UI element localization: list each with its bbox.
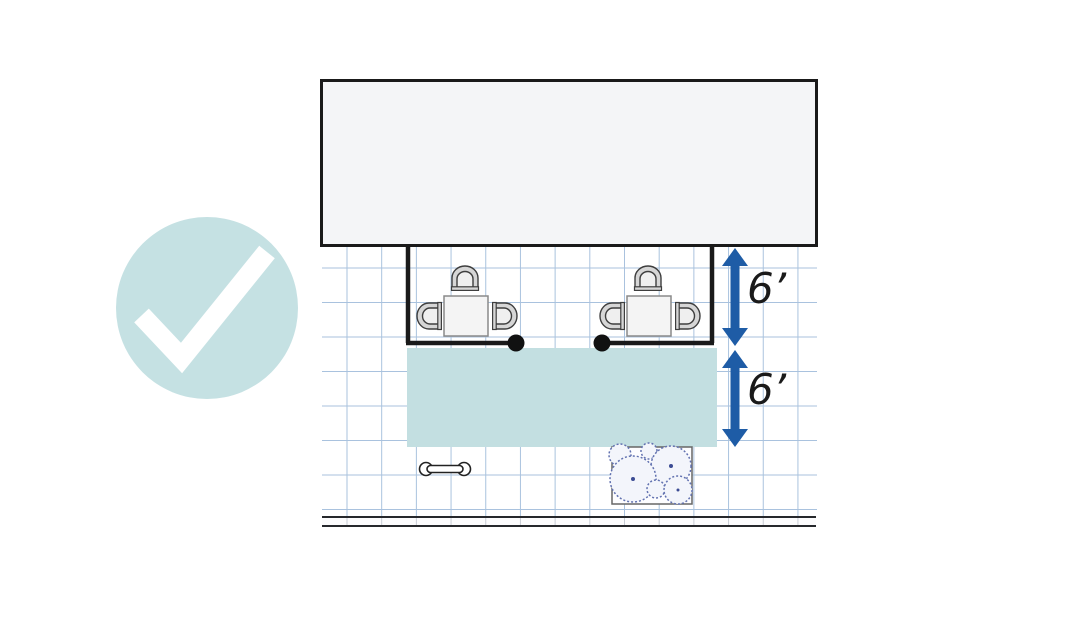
barrier-post-right (594, 335, 611, 352)
table-with-chairs-icon-1 (417, 266, 517, 336)
double-arrow-icon-lower (722, 350, 748, 447)
double-arrow-icon-upper (722, 248, 748, 346)
diagram-overlay (0, 0, 1070, 642)
bike-rack-icon (420, 463, 471, 476)
diagram-canvas: 6’ 6’ (0, 0, 1070, 642)
dimension-label-path-width: 6’ (747, 369, 785, 411)
table-with-chairs-icon-2 (600, 266, 700, 336)
checkmark-icon (116, 217, 298, 399)
dimension-label-cafe-depth: 6’ (747, 268, 785, 310)
tree-planter-icon (609, 443, 692, 504)
barrier-post-left (508, 335, 525, 352)
